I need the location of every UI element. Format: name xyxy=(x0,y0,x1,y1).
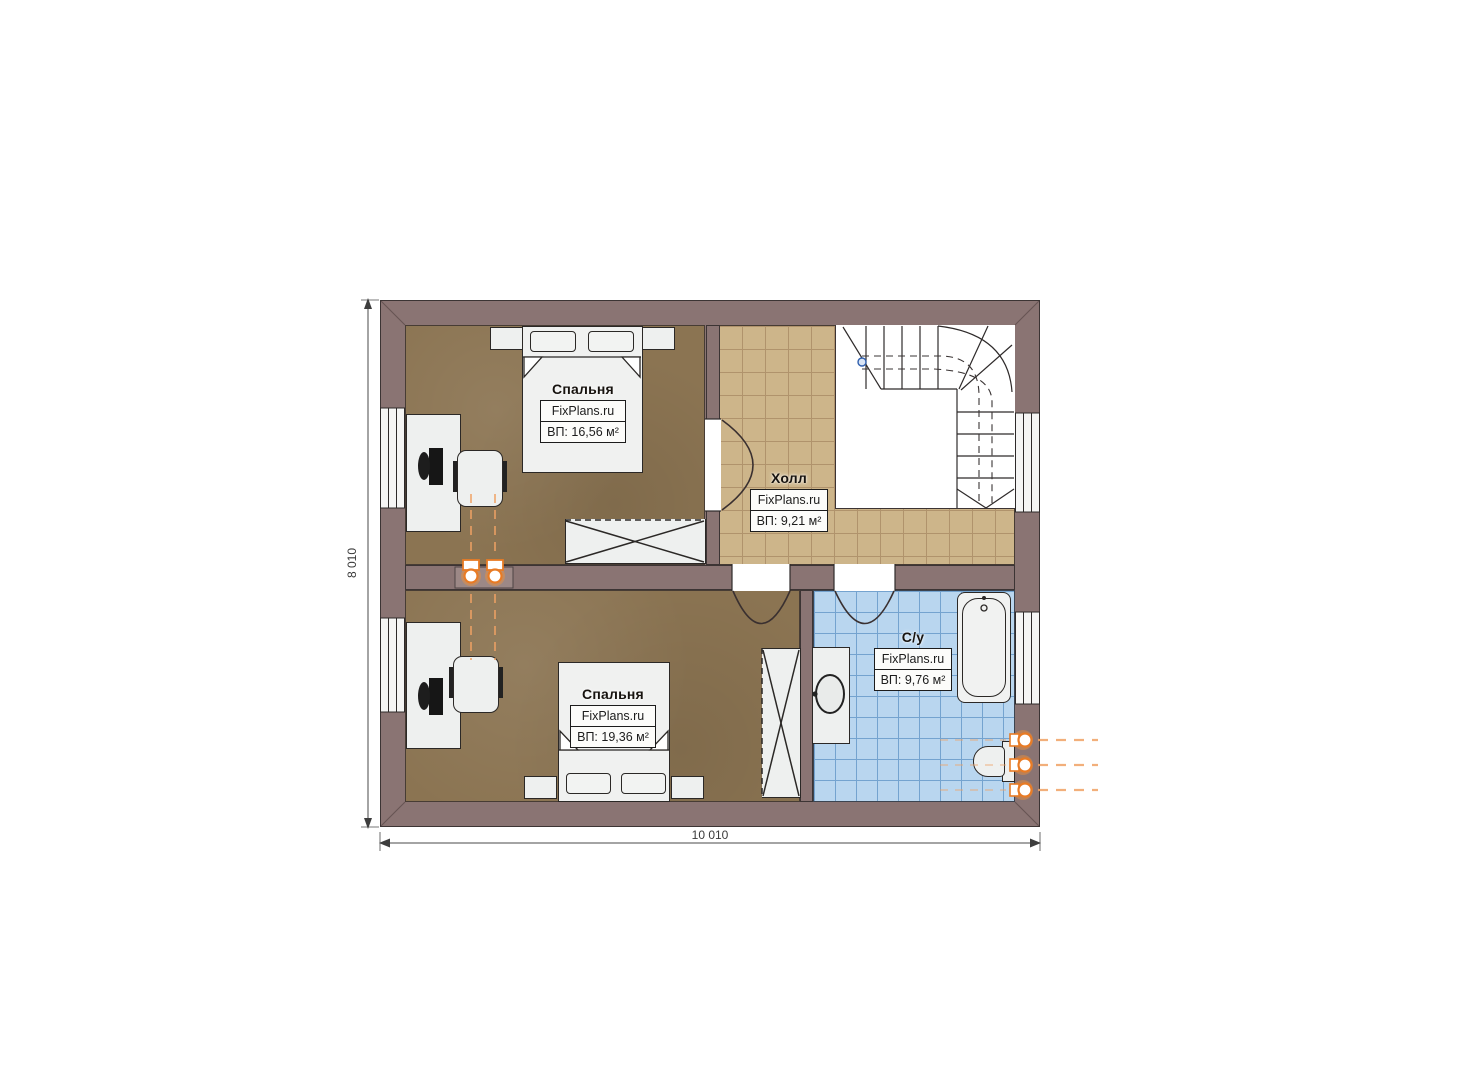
office-chair xyxy=(457,450,503,507)
brand-watermark: FixPlans.ru xyxy=(875,649,952,669)
wardrobe xyxy=(762,648,801,798)
area-info-box: FixPlans.ru ВП: 16,56 м² xyxy=(540,400,626,443)
room-title: С/у xyxy=(869,629,957,645)
nightstand xyxy=(490,327,523,350)
toilet-bowl xyxy=(973,746,1005,777)
floor-plan-canvas: Спальня FixPlans.ru ВП: 16,56 м² Холл Fi… xyxy=(0,0,1473,1080)
bathtub-inner xyxy=(962,598,1006,697)
pillow xyxy=(621,773,666,794)
dimension-width: 10 010 xyxy=(685,828,735,842)
wall-middle xyxy=(405,565,1015,590)
brand-watermark: FixPlans.ru xyxy=(751,490,828,510)
nightstand xyxy=(524,776,557,799)
bedroom-1-label: Спальня FixPlans.ru ВП: 16,56 м² xyxy=(533,381,633,443)
computer-monitor xyxy=(429,448,443,485)
room-area: ВП: 19,36 м² xyxy=(571,726,655,747)
sink-vanity xyxy=(812,647,850,744)
bedroom-2-label: Спальня FixPlans.ru ВП: 19,36 м² xyxy=(563,686,663,748)
dimension-height: 8 010 xyxy=(345,548,359,578)
hall-label: Холл FixPlans.ru ВП: 9,21 м² xyxy=(743,470,835,532)
door-opening-hall-bathroom xyxy=(834,564,895,591)
stairwell-void xyxy=(835,325,1015,509)
door-opening-hall-bedroom2 xyxy=(732,564,790,591)
wardrobe xyxy=(565,519,706,564)
nightstand xyxy=(642,327,675,350)
computer-monitor xyxy=(429,678,443,715)
door-opening-bedroom1-hall xyxy=(705,419,721,511)
room-title: Спальня xyxy=(533,381,633,397)
room-area: ВП: 9,21 м² xyxy=(751,510,828,531)
pillow xyxy=(588,331,634,352)
office-chair xyxy=(453,656,499,713)
brand-watermark: FixPlans.ru xyxy=(571,706,655,726)
brand-watermark: FixPlans.ru xyxy=(541,401,625,421)
area-info-box: FixPlans.ru ВП: 9,21 м² xyxy=(750,489,829,532)
pillow xyxy=(566,773,611,794)
area-info-box: FixPlans.ru ВП: 9,76 м² xyxy=(874,648,953,691)
area-info-box: FixPlans.ru ВП: 19,36 м² xyxy=(570,705,656,748)
room-title: Холл xyxy=(743,470,835,486)
pillow xyxy=(530,331,576,352)
room-area: ВП: 9,76 м² xyxy=(875,669,952,690)
room-title: Спальня xyxy=(563,686,663,702)
room-area: ВП: 16,56 м² xyxy=(541,421,625,442)
nightstand xyxy=(671,776,704,799)
bathroom-label: С/у FixPlans.ru ВП: 9,76 м² xyxy=(869,629,957,691)
